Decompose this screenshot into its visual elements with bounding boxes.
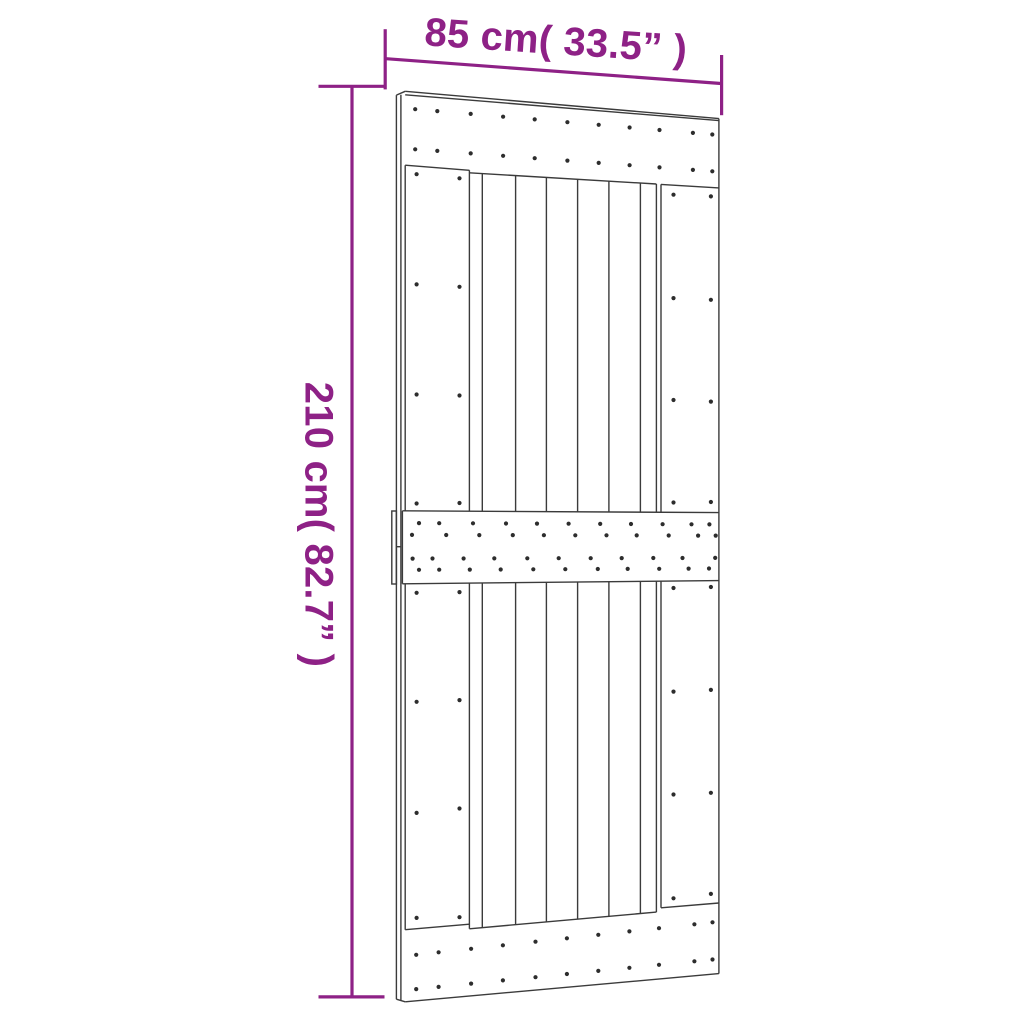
svg-text:210 cm( 82.7” ): 210 cm( 82.7” ) [297, 382, 341, 667]
svg-text:85 cm( 33.5” ): 85 cm( 33.5” ) [423, 10, 688, 71]
